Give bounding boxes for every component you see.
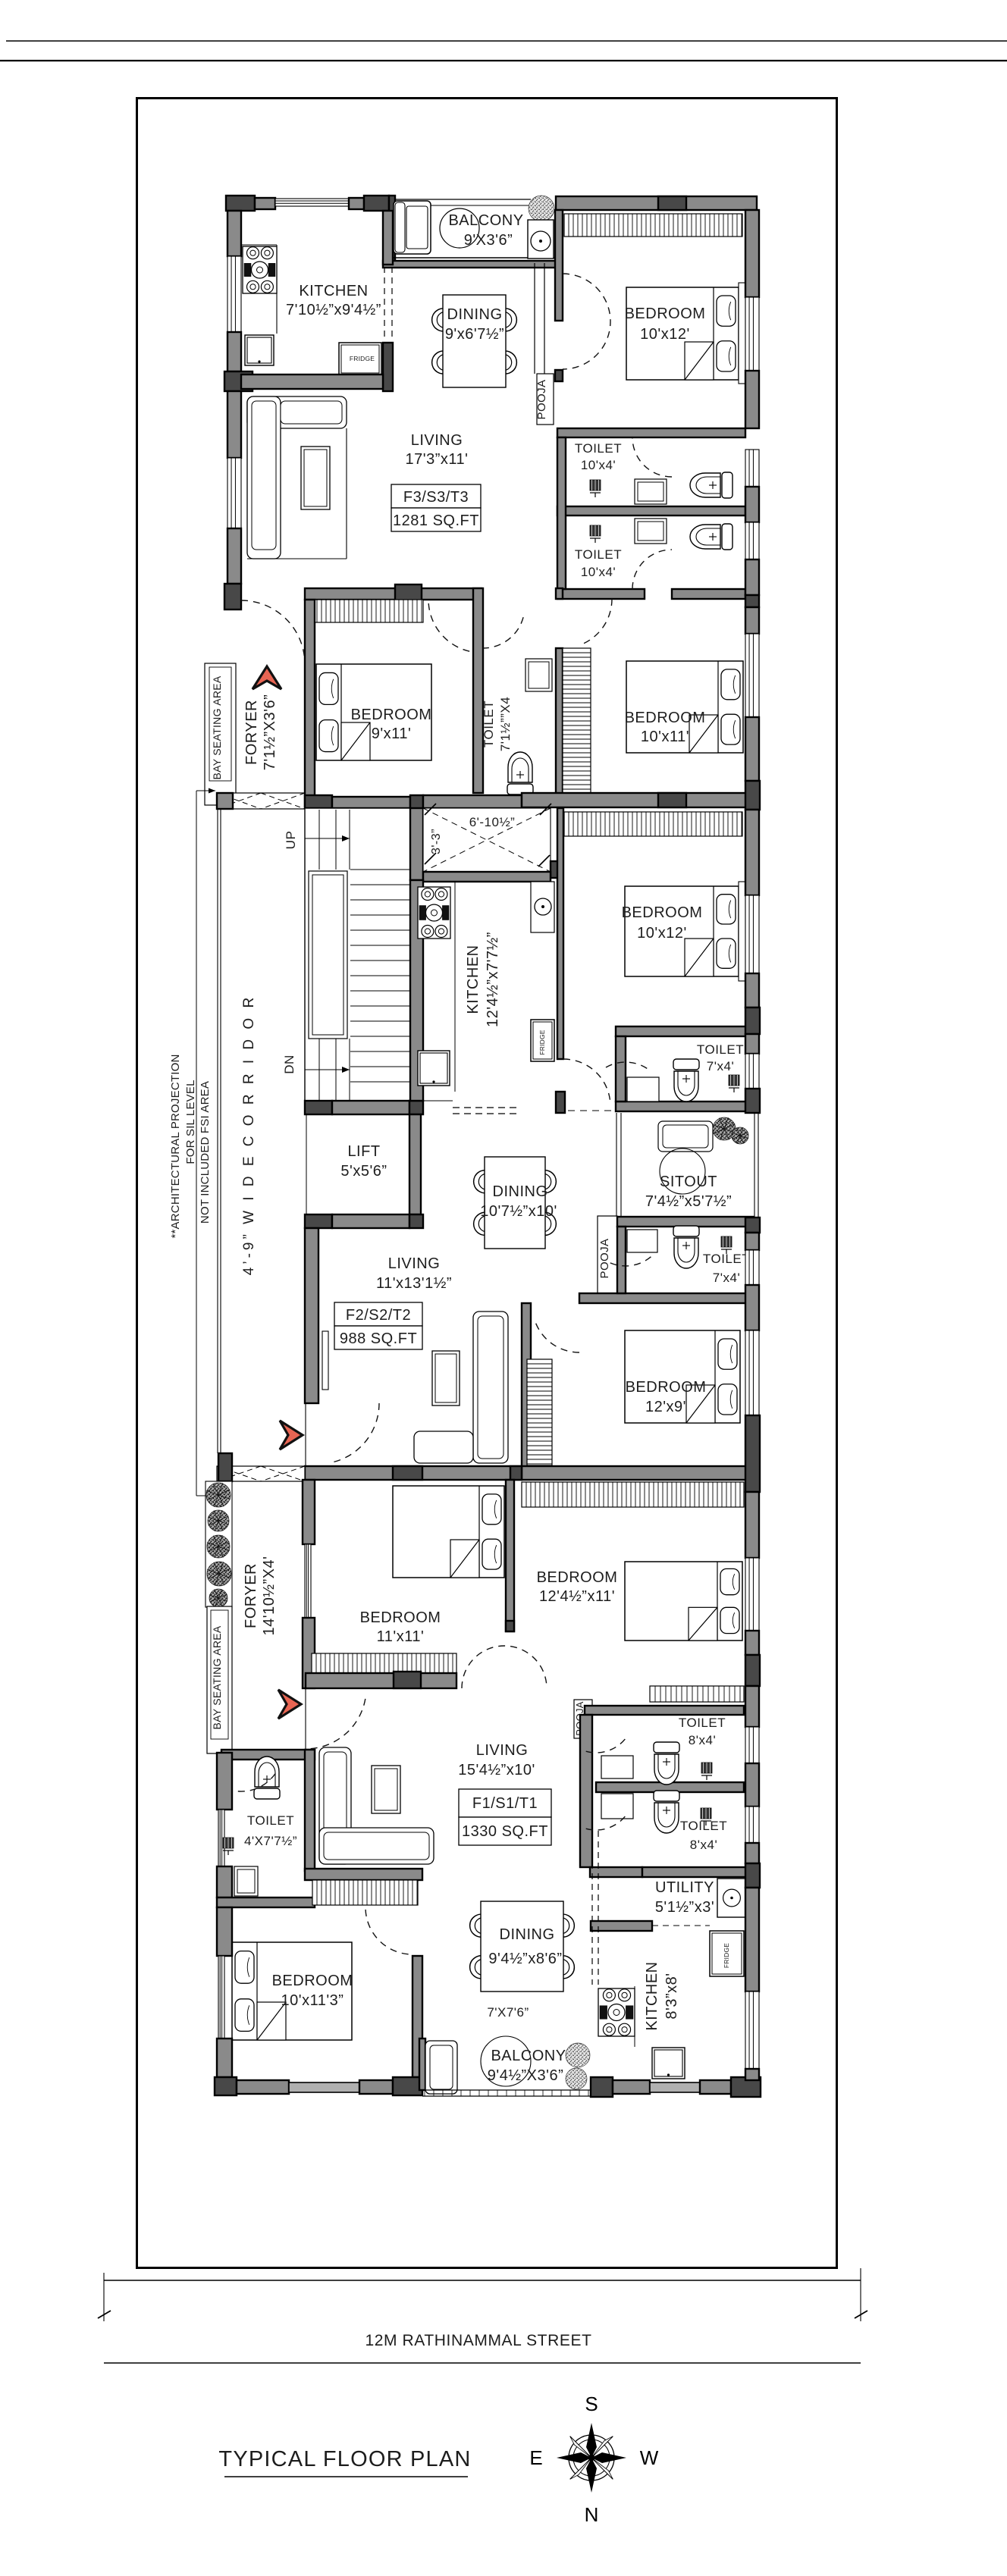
svg-text:10'x4': 10'x4' bbox=[581, 458, 616, 472]
svg-text:9'x11': 9'x11' bbox=[372, 725, 412, 742]
svg-text:7'1½”X3'6”: 7'1½”X3'6” bbox=[262, 694, 278, 770]
svg-text:LIFT: LIFT bbox=[347, 1143, 380, 1160]
svg-text:FORYER: FORYER bbox=[243, 1563, 259, 1628]
svg-text:UP: UP bbox=[284, 831, 298, 850]
svg-text:BEDROOM: BEDROOM bbox=[625, 710, 706, 726]
svg-text:NOT INCLUDED FSI AREA: NOT INCLUDED FSI AREA bbox=[199, 1081, 212, 1224]
svg-text:DN: DN bbox=[282, 1055, 296, 1074]
svg-text:S: S bbox=[585, 2393, 598, 2415]
svg-text:5'x5'6”: 5'x5'6” bbox=[340, 1163, 387, 1180]
svg-text:BALCONY: BALCONY bbox=[448, 212, 523, 229]
svg-text:12'4½”x11': 12'4½”x11' bbox=[539, 1588, 615, 1605]
svg-text:14'10½”X4': 14'10½”X4' bbox=[261, 1556, 278, 1636]
svg-text:TYPICAL FLOOR PLAN: TYPICAL FLOOR PLAN bbox=[218, 2447, 471, 2471]
svg-text:1330 SQ.FT: 1330 SQ.FT bbox=[462, 1823, 548, 1840]
svg-text:9'4½”X3'6”: 9'4½”X3'6” bbox=[488, 2067, 563, 2084]
svg-text:7'x4': 7'x4' bbox=[713, 1271, 740, 1285]
svg-text:7'1½””X4: 7'1½””X4 bbox=[498, 697, 513, 751]
svg-text:LIVING: LIVING bbox=[476, 1742, 529, 1759]
svg-text:BEDROOM: BEDROOM bbox=[351, 707, 432, 723]
svg-text:6'-10½”: 6'-10½” bbox=[469, 815, 516, 829]
svg-text:7'4½”x5'7½”: 7'4½”x5'7½” bbox=[645, 1193, 732, 1210]
svg-text:DINING: DINING bbox=[447, 306, 503, 323]
svg-text:LIVING: LIVING bbox=[388, 1255, 441, 1272]
svg-text:N: N bbox=[585, 2503, 599, 2526]
svg-text:W: W bbox=[640, 2446, 659, 2469]
svg-text:F3/S3/T3: F3/S3/T3 bbox=[403, 489, 469, 506]
svg-text:TOILET: TOILET bbox=[679, 1716, 726, 1730]
svg-text:15'4½”x10': 15'4½”x10' bbox=[458, 1762, 535, 1778]
svg-text:3'-3”: 3'-3” bbox=[430, 829, 443, 854]
svg-text:SITOUT: SITOUT bbox=[660, 1174, 717, 1190]
svg-text:9'4½”x8'6”: 9'4½”x8'6” bbox=[488, 1951, 562, 1967]
svg-text:TOILET: TOILET bbox=[575, 441, 622, 456]
svg-text:9'X3'6”: 9'X3'6” bbox=[464, 232, 513, 249]
svg-text:8'x4': 8'x4' bbox=[689, 1733, 716, 1747]
svg-text:TOILET: TOILET bbox=[697, 1042, 744, 1057]
svg-text:10'7½”x10': 10'7½”x10' bbox=[480, 1203, 557, 1220]
svg-text:4’-9” W I D E C O R R I D O R: 4’-9” W I D E C O R R I D O R bbox=[241, 995, 257, 1275]
svg-text:KITCHEN: KITCHEN bbox=[644, 1961, 660, 2030]
svg-text:10'x11'3”: 10'x11'3” bbox=[281, 1992, 344, 2009]
svg-text:DINING: DINING bbox=[500, 1926, 555, 1943]
svg-text:11'x11': 11'x11' bbox=[377, 1628, 425, 1645]
svg-text:TOILET: TOILET bbox=[482, 700, 496, 747]
svg-text:9'x6'7½”: 9'x6'7½” bbox=[445, 326, 504, 343]
svg-text:BAY SEATING AREA: BAY SEATING AREA bbox=[211, 1625, 223, 1729]
svg-text:BEDROOM: BEDROOM bbox=[360, 1609, 441, 1626]
svg-text:7'x4': 7'x4' bbox=[707, 1059, 734, 1073]
svg-text:12'4½”x7'7½”: 12'4½”x7'7½” bbox=[485, 932, 501, 1027]
svg-text:BEDROOM: BEDROOM bbox=[622, 904, 703, 921]
svg-text:BAY SEATING AREA: BAY SEATING AREA bbox=[211, 675, 223, 779]
svg-text:F1/S1/T1: F1/S1/T1 bbox=[472, 1795, 538, 1812]
svg-text:TOILET: TOILET bbox=[247, 1813, 294, 1828]
svg-text:10'x12': 10'x12' bbox=[640, 326, 690, 343]
svg-text:FRIDGE: FRIDGE bbox=[723, 1943, 730, 1968]
svg-text:988 SQ.FT: 988 SQ.FT bbox=[340, 1330, 417, 1347]
svg-text:KITCHEN: KITCHEN bbox=[299, 283, 368, 299]
svg-text:10'x11': 10'x11' bbox=[641, 729, 689, 745]
svg-text:5'1½”x3': 5'1½”x3' bbox=[655, 1899, 714, 1916]
svg-text:10'x4': 10'x4' bbox=[581, 565, 616, 579]
svg-text:BEDROOM: BEDROOM bbox=[537, 1569, 618, 1586]
svg-text:4'X7'7½”: 4'X7'7½” bbox=[244, 1834, 297, 1848]
svg-text:BEDROOM: BEDROOM bbox=[626, 1379, 707, 1396]
svg-text:TOILET: TOILET bbox=[680, 1819, 727, 1833]
svg-text:UTILITY: UTILITY bbox=[655, 1879, 714, 1896]
svg-text:E: E bbox=[529, 2446, 542, 2469]
svg-text:10'x12': 10'x12' bbox=[637, 925, 687, 942]
svg-text:FRIDGE: FRIDGE bbox=[350, 355, 375, 362]
svg-text:FRIDGE: FRIDGE bbox=[538, 1029, 546, 1055]
svg-text:BALCONY: BALCONY bbox=[491, 2048, 566, 2064]
svg-text:17'3”x11': 17'3”x11' bbox=[406, 451, 469, 468]
svg-text:12'x9': 12'x9' bbox=[645, 1399, 686, 1415]
svg-text:BEDROOM: BEDROOM bbox=[272, 1973, 353, 1989]
svg-text:POOJA: POOJA bbox=[535, 380, 548, 420]
svg-text:F2/S2/T2: F2/S2/T2 bbox=[346, 1307, 411, 1324]
svg-text:**ARCHITECTURAL PROJECTION: **ARCHITECTURAL PROJECTION bbox=[169, 1054, 182, 1238]
svg-text:FORYER: FORYER bbox=[243, 700, 260, 765]
svg-text:KITCHEN: KITCHEN bbox=[465, 945, 482, 1014]
svg-text:11'x13'1½”: 11'x13'1½” bbox=[376, 1275, 452, 1292]
svg-text:BEDROOM: BEDROOM bbox=[625, 306, 706, 322]
svg-text:FOR SIL LEVEL: FOR SIL LEVEL bbox=[184, 1080, 197, 1164]
svg-text:8'x4': 8'x4' bbox=[690, 1838, 717, 1852]
svg-text:POOJA: POOJA bbox=[598, 1239, 611, 1279]
svg-text:DINING: DINING bbox=[493, 1183, 548, 1200]
svg-text:8'3”x8': 8'3”x8' bbox=[663, 1973, 680, 2019]
svg-text:TOILET: TOILET bbox=[575, 547, 622, 562]
svg-text:1281 SQ.FT: 1281 SQ.FT bbox=[393, 512, 479, 529]
svg-text:7'X7'6”: 7'X7'6” bbox=[487, 2005, 529, 2020]
svg-text:7'10½”x9'4½”: 7'10½”x9'4½” bbox=[286, 302, 381, 318]
svg-text:12M RATHINAMMAL STREET: 12M RATHINAMMAL STREET bbox=[365, 2332, 591, 2349]
svg-text:LIVING: LIVING bbox=[411, 432, 463, 449]
